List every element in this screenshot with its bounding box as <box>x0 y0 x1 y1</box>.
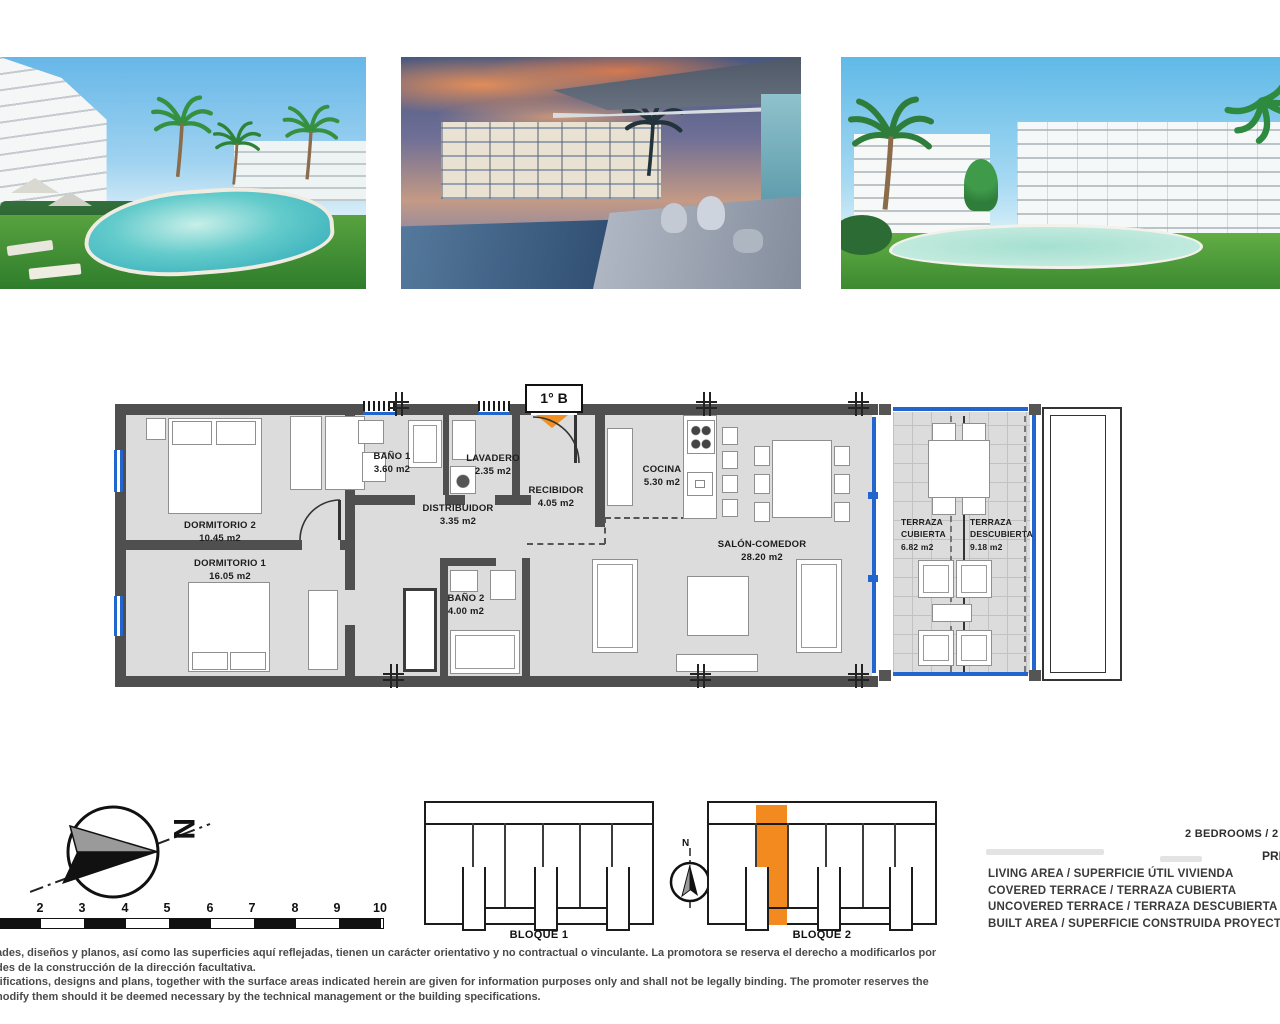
brochure-page: { "floor_plan": { "unit_label": "1° B", … <box>0 0 1280 1024</box>
dimension-mark <box>690 664 711 688</box>
wall <box>440 558 496 566</box>
chair-icon <box>754 502 770 522</box>
scale-segment <box>0 919 41 928</box>
outdoor-chair-icon <box>932 423 956 441</box>
room-label-recibidor: RECIBIDOR4.05 m2 <box>526 484 586 511</box>
room-label-terraza-cubierta: TERRAZA CUBIERTA6.82 m2 <box>901 516 951 553</box>
terrace-glazing <box>893 407 1028 411</box>
wall <box>115 676 878 687</box>
scale-tick: 2 <box>37 901 44 915</box>
outdoor-chair-icon <box>962 497 986 515</box>
room-name: DORMITORIO 2 <box>160 519 280 532</box>
wardrobe-icon <box>403 588 437 672</box>
outdoor-chair-icon <box>932 497 956 515</box>
wardrobe-icon <box>290 416 322 490</box>
room-name: RECIBIDOR <box>526 484 586 497</box>
block1-label: BLOQUE 1 <box>424 929 654 941</box>
scale-segment <box>339 919 382 928</box>
wall <box>595 415 605 527</box>
key-plan-block1 <box>424 801 654 925</box>
scale-segment <box>296 919 339 928</box>
glass-joint <box>868 575 878 582</box>
coffee-table-icon <box>687 576 749 636</box>
block1-text: BLOQUE 1 <box>510 929 569 941</box>
washbasin-icon <box>450 570 478 592</box>
wall <box>355 495 415 505</box>
terrace-post <box>879 670 891 681</box>
room-area: 6.82 m2 <box>901 541 951 553</box>
terrace-post <box>879 404 891 415</box>
room-name: BAÑO 2 <box>436 592 496 605</box>
wall <box>443 415 449 495</box>
room-label-cocina: COCINA5.30 m2 <box>632 463 692 490</box>
bedroom-window <box>114 596 123 636</box>
room-area: 28.20 m2 <box>702 551 822 564</box>
shower-icon <box>450 630 520 674</box>
chair-icon <box>754 446 770 466</box>
stool-icon <box>722 451 738 469</box>
lounger-icon <box>956 560 992 598</box>
room-area: 3.60 m2 <box>362 463 422 476</box>
outdoor-table-icon <box>928 440 990 498</box>
pillow-icon <box>192 652 228 670</box>
row-text: BUILT AREA / SUPERFICIE CONSTRUIDA PROYE… <box>988 918 1280 930</box>
dimension-mark <box>848 392 869 416</box>
outdoor-chair-icon <box>962 423 986 441</box>
chair-icon <box>834 474 850 494</box>
north-label: N <box>166 818 200 852</box>
room-area: 9.18 m2 <box>970 541 1028 553</box>
disclaimer: ades, diseños y planos, así como las sup… <box>0 946 936 1004</box>
disclaimer-line: nodify them should it be deemed necessar… <box>0 990 936 1005</box>
summary-bedrooms: 2 BEDROOMS / 2 DO <box>1185 828 1280 840</box>
scale-tick: 6 <box>207 901 214 915</box>
key-plan-block2 <box>707 801 937 925</box>
room-name: LAVADERO <box>463 452 523 465</box>
room-area: 4.05 m2 <box>526 497 586 510</box>
unit-label: 1° B <box>540 390 567 406</box>
block2-label: BLOQUE 2 <box>707 929 937 941</box>
room-label-lavadero: LAVADERO2.35 m2 <box>463 452 523 479</box>
disclaimer-line: des de la construcción de la dirección f… <box>0 961 936 976</box>
stair-core <box>745 867 769 931</box>
wall <box>577 404 878 415</box>
stair-core <box>534 867 558 931</box>
room-area: 10.45 m2 <box>160 532 280 545</box>
summary-row-living: LIVING AREA / SUPERFICIE ÚTIL VIVIENDA <box>988 866 1280 883</box>
room-area: 4.00 m2 <box>436 605 496 618</box>
scale-tick: 4 <box>122 901 129 915</box>
summary-floor: PRIM <box>1262 849 1280 863</box>
stool-icon <box>722 475 738 493</box>
lounger-icon <box>918 630 954 666</box>
wall <box>522 558 530 676</box>
disclaimer-line: tifications, designs and plans, together… <box>0 975 936 990</box>
stool-icon <box>722 427 738 445</box>
scale-numbers: 2 3 4 5 6 7 8 9 10 <box>0 901 400 916</box>
dining-table-icon <box>772 440 832 518</box>
room-label-dorm2: DORMITORIO 210.45 m2 <box>160 519 280 546</box>
disclaimer-text: tifications, designs and plans, together… <box>0 976 929 988</box>
sofa-icon <box>796 559 842 653</box>
key-plan-north-label: N <box>682 838 689 849</box>
scale-segment <box>41 919 84 928</box>
dimension-mark <box>696 392 717 416</box>
unit-divider <box>504 823 506 907</box>
facade-line <box>426 823 652 825</box>
faint-text <box>1160 856 1202 862</box>
summary-row-built: BUILT AREA / SUPERFICIE CONSTRUIDA PROYE… <box>988 916 1280 933</box>
row-text: COVERED TERRACE / TERRAZA CUBIERTA <box>988 885 1236 897</box>
room-label-dorm1: DORMITORIO 116.05 m2 <box>170 557 290 584</box>
pillow-icon <box>216 421 256 445</box>
scale-segment <box>84 919 127 928</box>
uncovered-terrace-inner <box>1050 415 1106 673</box>
disclaimer-line: ades, diseños y planos, así como las sup… <box>0 946 936 961</box>
disclaimer-text: nodify them should it be deemed necessar… <box>0 991 541 1003</box>
stair-core <box>889 867 913 931</box>
bedrooms-text: 2 BEDROOMS / 2 DO <box>1185 828 1280 840</box>
stair-core <box>462 867 486 931</box>
room-label-distribuidor: DISTRIBUIDOR3.35 m2 <box>418 502 498 529</box>
terrace-post <box>1029 670 1041 681</box>
room-area: 16.05 m2 <box>170 570 290 583</box>
nightstand-icon <box>146 418 166 440</box>
terrace-glazing <box>1032 414 1036 672</box>
summary-row-uncovered: UNCOVERED TERRACE / TERRAZA DESCUBIERTA <box>988 899 1280 916</box>
scale-segment <box>126 919 169 928</box>
scale-segment <box>254 919 297 928</box>
wall <box>115 404 365 415</box>
room-area: 5.30 m2 <box>632 476 692 489</box>
stair-core <box>606 867 630 931</box>
scale-tick: 7 <box>249 901 256 915</box>
room-label-salon: SALÓN-COMEDOR28.20 m2 <box>702 538 822 565</box>
room-label-bano1: BAÑO 13.60 m2 <box>362 450 422 477</box>
block2-text: BLOQUE 2 <box>793 929 852 941</box>
dashed-boundary <box>527 543 605 545</box>
sofa-icon <box>592 559 638 653</box>
room-label-bano2: BAÑO 24.00 m2 <box>436 592 496 619</box>
terrace-post <box>1029 404 1041 415</box>
chair-icon <box>754 474 770 494</box>
room-name: DORMITORIO 1 <box>170 557 290 570</box>
vent-window-icon <box>478 401 510 411</box>
pillow-icon <box>230 652 266 670</box>
chair-icon <box>834 446 850 466</box>
scale-tick: 8 <box>292 901 299 915</box>
lounger-icon <box>956 630 992 666</box>
dimension-mark <box>848 664 869 688</box>
room-name: DISTRIBUIDOR <box>418 502 498 515</box>
stove-icon <box>687 420 715 454</box>
room-name: COCINA <box>632 463 692 476</box>
tv-bench-icon <box>676 654 758 672</box>
row-text: LIVING AREA / SUPERFICIE ÚTIL VIVIENDA <box>988 868 1234 880</box>
wall <box>345 625 355 676</box>
room-name: BAÑO 1 <box>362 450 422 463</box>
room-area: 2.35 m2 <box>463 465 523 478</box>
scale-tick: 9 <box>334 901 341 915</box>
dimension-mark <box>388 392 409 416</box>
scale-segment <box>169 919 212 928</box>
unit-divider <box>862 823 864 907</box>
stool-icon <box>722 499 738 517</box>
floor-text: PRIM <box>1262 849 1280 863</box>
unit-label-box: 1° B <box>525 384 583 413</box>
north-letter: N <box>682 838 689 849</box>
dimension-mark <box>383 664 404 688</box>
lounger-icon <box>918 560 954 598</box>
bedroom-window <box>114 450 123 492</box>
disclaimer-text: ades, diseños y planos, así como las sup… <box>0 947 936 959</box>
faint-text <box>986 849 1104 855</box>
terrace-glazing <box>893 672 1028 676</box>
glass-joint <box>868 492 878 499</box>
stair-core <box>817 867 841 931</box>
north-letter: N <box>167 818 200 840</box>
pillow-icon <box>172 421 212 445</box>
window-glazing <box>478 412 510 415</box>
unit-divider <box>579 823 581 907</box>
scale-tick: 10 <box>373 901 387 915</box>
chair-icon <box>834 502 850 522</box>
dashed-boundary <box>604 517 606 544</box>
door-leaf <box>574 415 577 463</box>
scale-segment <box>211 919 254 928</box>
room-name: SALÓN-COMEDOR <box>702 538 822 551</box>
disclaimer-text: des de la construcción de la dirección f… <box>0 962 256 974</box>
room-area: 3.35 m2 <box>418 515 498 528</box>
wall <box>115 404 126 687</box>
room-name: TERRAZA DESCUBIERTA <box>970 516 1028 541</box>
room-label-terraza-descubierta: TERRAZA DESCUBIERTA9.18 m2 <box>970 516 1028 553</box>
north-arrow-compass <box>30 798 230 906</box>
row-text: UNCOVERED TERRACE / TERRAZA DESCUBIERTA <box>988 901 1278 913</box>
facade-line <box>709 823 935 825</box>
summary-rows: LIVING AREA / SUPERFICIE ÚTIL VIVIENDA C… <box>988 866 1280 932</box>
wardrobe-icon <box>308 590 338 670</box>
side-table-icon <box>932 604 972 622</box>
washbasin-icon <box>358 420 384 444</box>
unit-divider <box>787 823 789 907</box>
scale-tick: 5 <box>164 901 171 915</box>
glass-wall <box>872 417 876 673</box>
wardrobe-icon <box>607 428 633 506</box>
dashed-boundary <box>605 517 687 519</box>
scale-bar <box>0 918 384 929</box>
room-name: TERRAZA CUBIERTA <box>901 516 951 541</box>
summary-row-covered: COVERED TERRACE / TERRAZA CUBIERTA <box>988 883 1280 900</box>
door-leaf <box>338 500 341 540</box>
scale-tick: 3 <box>79 901 86 915</box>
